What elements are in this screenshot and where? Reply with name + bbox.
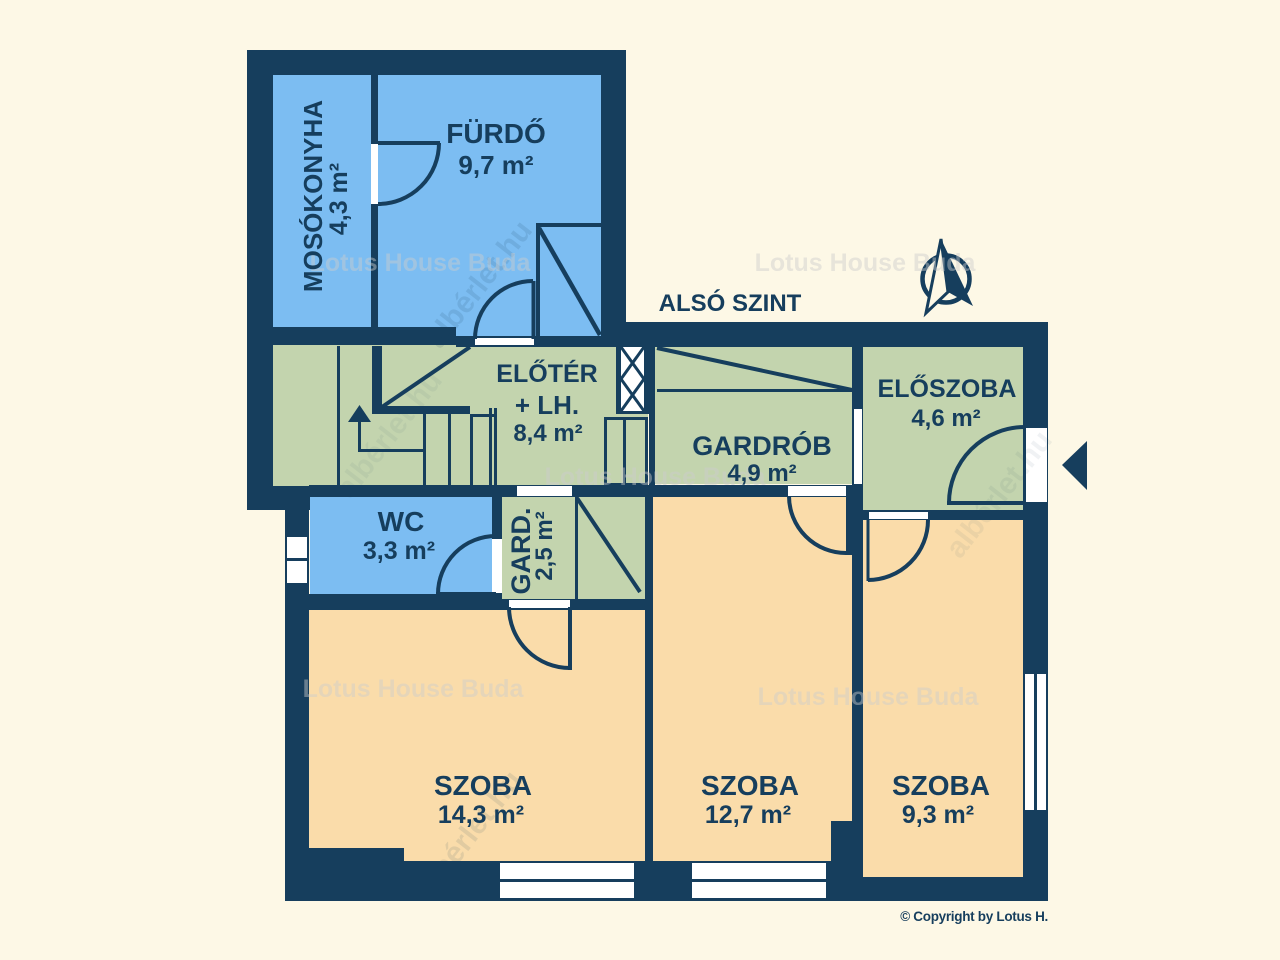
svg-text:8,4 m²: 8,4 m² [513, 420, 582, 447]
svg-text:Lotus House Buda: Lotus House Buda [303, 675, 525, 703]
svg-text:4,9 m²: 4,9 m² [727, 460, 796, 487]
svg-text:+ LH.: + LH. [515, 390, 579, 420]
svg-text:SZOBA: SZOBA [892, 770, 990, 801]
svg-text:Lotus House Buda: Lotus House Buda [310, 249, 532, 277]
svg-text:MOSÓKONYHA: MOSÓKONYHA [298, 100, 328, 292]
svg-text:SZOBA: SZOBA [701, 770, 799, 801]
svg-text:2,5 m²: 2,5 m² [531, 511, 558, 580]
svg-text:ALSÓ SZINT: ALSÓ SZINT [659, 289, 802, 317]
svg-text:12,7 m²: 12,7 m² [705, 801, 791, 829]
svg-text:9,7 m²: 9,7 m² [458, 150, 533, 180]
svg-text:3,3 m²: 3,3 m² [363, 537, 435, 565]
svg-text:© Copyright by Lotus H.: © Copyright by Lotus H. [900, 909, 1048, 924]
svg-text:GARDRÓB: GARDRÓB [692, 430, 832, 461]
svg-text:Lotus House Buda: Lotus House Buda [755, 249, 977, 277]
svg-text:FÜRDŐ: FÜRDŐ [446, 118, 546, 149]
svg-text:ELŐTÉR: ELŐTÉR [496, 359, 597, 388]
svg-text:9,3 m²: 9,3 m² [902, 801, 974, 829]
svg-text:4,3 m²: 4,3 m² [325, 163, 353, 235]
svg-text:WC: WC [378, 506, 425, 537]
svg-text:SZOBA: SZOBA [434, 770, 532, 801]
svg-text:4,6 m²: 4,6 m² [911, 405, 980, 432]
svg-text:ELŐSZOBA: ELŐSZOBA [878, 374, 1017, 403]
svg-text:Lotus House Buda: Lotus House Buda [758, 683, 980, 711]
svg-text:14,3 m²: 14,3 m² [438, 801, 524, 829]
